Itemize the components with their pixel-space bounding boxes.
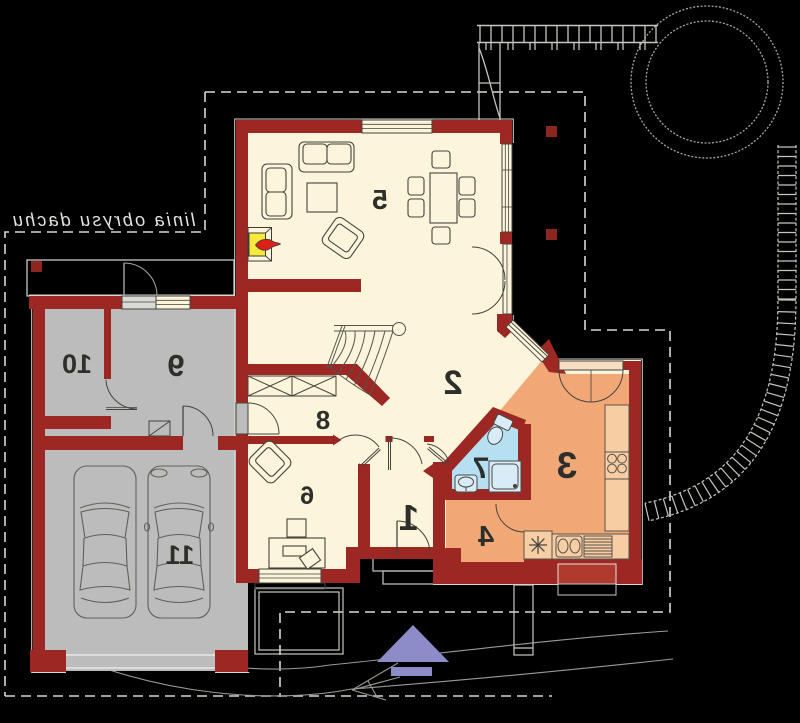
svg-text:11: 11 xyxy=(166,540,195,570)
svg-text:9: 9 xyxy=(167,348,184,383)
svg-text:3: 3 xyxy=(557,445,578,486)
svg-text:10: 10 xyxy=(62,349,92,379)
svg-text:linia obrysu dachu: linia obrysu dachu xyxy=(11,210,196,230)
svg-text:7: 7 xyxy=(473,452,490,485)
svg-text:4: 4 xyxy=(478,521,494,553)
svg-text:5: 5 xyxy=(372,184,388,215)
svg-text:1: 1 xyxy=(399,497,419,538)
svg-text:2: 2 xyxy=(444,364,463,402)
svg-text:6: 6 xyxy=(300,482,314,510)
svg-text:8: 8 xyxy=(316,405,330,435)
